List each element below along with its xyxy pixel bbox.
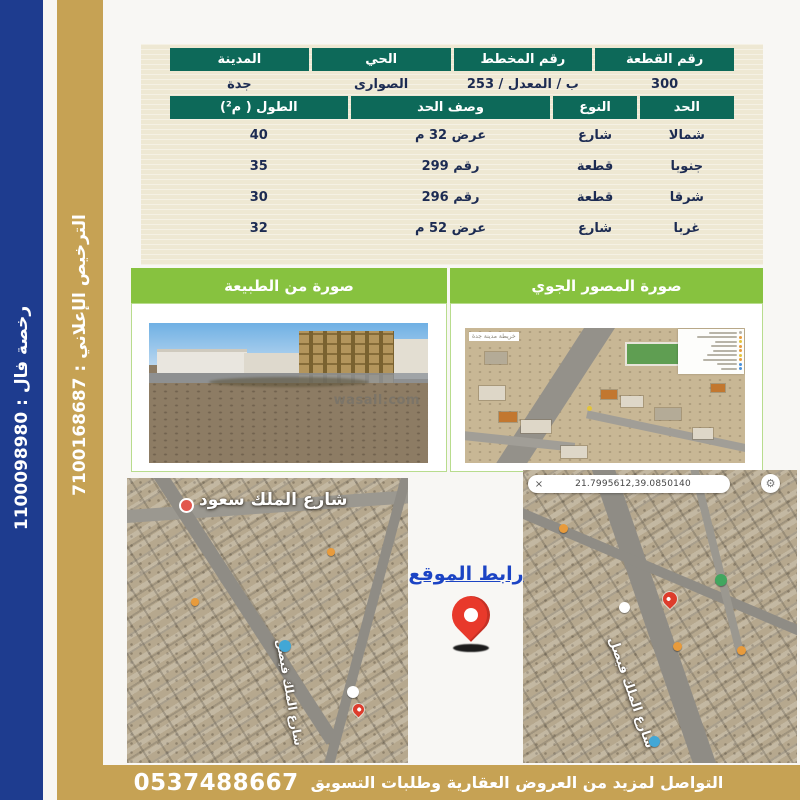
footer-message: التواصل لمزيد من العروض العقارية وطلبات … bbox=[311, 773, 724, 792]
east-length: 30 bbox=[170, 182, 348, 212]
pin-shadow bbox=[453, 644, 489, 652]
north-length: 40 bbox=[170, 120, 348, 150]
plot-marker bbox=[587, 406, 592, 411]
value-city: جدة bbox=[170, 72, 309, 96]
coordinates-pill: × 21.7995612,39.0850140 bbox=[528, 475, 730, 493]
poi-icon bbox=[673, 642, 682, 651]
site-link-label[interactable]: رابط الموقع bbox=[408, 563, 524, 585]
west-desc: عرض 52 م bbox=[351, 213, 551, 243]
building-block bbox=[601, 390, 617, 399]
south-desc: رقم 299 bbox=[351, 151, 551, 181]
road bbox=[319, 478, 408, 763]
aerial-photo-header: صورة المصور الجوي bbox=[450, 268, 763, 303]
ad-license-text: الترخيص الإعلاني : 7100168687 bbox=[70, 214, 90, 496]
value-district: الصوارى bbox=[312, 72, 451, 96]
street-marker-icon bbox=[181, 500, 192, 511]
east-type: قطعة bbox=[553, 182, 636, 212]
west-type: شارع bbox=[553, 213, 636, 243]
real-estate-flyer: رخصة فال : 1100098980 الترخيص الإعلاني :… bbox=[0, 0, 800, 800]
north-desc: عرض 32 م bbox=[351, 120, 551, 150]
south-type: قطعة bbox=[553, 151, 636, 181]
header-type: النوع bbox=[553, 96, 636, 119]
header-plan-number: رقم المخطط bbox=[454, 48, 593, 71]
nature-photo: wasall.com bbox=[149, 323, 428, 463]
header-plot-number: رقم القطعة bbox=[595, 48, 734, 71]
nature-photo-header: صورة من الطبيعة bbox=[131, 268, 447, 303]
location-pin-icon bbox=[351, 702, 367, 718]
fal-license-text: رخصة فال : 1100098980 bbox=[12, 306, 32, 530]
building-block bbox=[621, 396, 643, 407]
site-link-pin-icon[interactable] bbox=[444, 588, 498, 642]
info-table: رقم القطعة رقم المخطط الحي المدينة 300 ب… bbox=[167, 47, 737, 97]
poi-icon bbox=[559, 524, 568, 533]
poi-icon bbox=[347, 686, 359, 698]
table-row: شرقا قطعة رقم 296 30 bbox=[170, 182, 734, 212]
gear-icon[interactable]: ⚙ bbox=[761, 474, 780, 493]
close-icon[interactable]: × bbox=[528, 479, 550, 490]
header-city: المدينة bbox=[170, 48, 309, 71]
map-title-label: خريطة مدينة جدة bbox=[469, 332, 519, 341]
left-map: شارع الملك سعود شارع الملك فيصل bbox=[127, 478, 408, 763]
header-boundary: الحد bbox=[640, 96, 734, 119]
building-block bbox=[521, 420, 551, 433]
building-block bbox=[561, 446, 587, 458]
value-plan-number: ب / المعدل / 253 bbox=[454, 72, 593, 96]
info-table-header-row: رقم القطعة رقم المخطط الحي المدينة bbox=[170, 48, 734, 71]
phone-number: 0537488667 bbox=[134, 770, 299, 796]
road bbox=[689, 470, 745, 658]
poi-icon bbox=[737, 646, 746, 655]
building-block bbox=[479, 386, 505, 400]
location-pin-icon bbox=[660, 589, 680, 609]
building bbox=[157, 349, 247, 373]
east-desc: رقم 296 bbox=[351, 182, 551, 212]
bounds-table: الحد النوع وصف الحد الطول ( م²) شمالا شا… bbox=[167, 95, 737, 244]
table-row: شمالا شارع عرض 32 م 40 bbox=[170, 120, 734, 150]
street-label-king-faisal: شارع الملك فيصل bbox=[605, 635, 657, 750]
header-district: الحي bbox=[312, 48, 451, 71]
right-map: شارع الملك فيصل × 21.7995612,39.0850140 … bbox=[523, 470, 797, 763]
east-side: شرقا bbox=[640, 182, 734, 212]
coordinates-text: 21.7995612,39.0850140 bbox=[550, 479, 730, 489]
legend bbox=[678, 329, 744, 374]
value-plot-number: 300 bbox=[595, 72, 734, 96]
footer-bar: التواصل لمزيد من العروض العقارية وطلبات … bbox=[57, 765, 800, 800]
mosque-poi-icon bbox=[279, 640, 291, 652]
info-table-value-row: 300 ب / المعدل / 253 الصوارى جدة bbox=[170, 72, 734, 96]
poi-icon bbox=[327, 548, 335, 556]
header-boundary-desc: وصف الحد bbox=[351, 96, 551, 119]
table-row: غربا شارع عرض 52 م 32 bbox=[170, 213, 734, 243]
north-type: شارع bbox=[553, 120, 636, 150]
table-row: جنوبا قطعة رقم 299 35 bbox=[170, 151, 734, 181]
bounds-table-header-row: الحد النوع وصف الحد الطول ( م²) bbox=[170, 96, 734, 119]
aerial-photo: خريطة مدينة جدة bbox=[465, 328, 745, 463]
south-side: جنوبا bbox=[640, 151, 734, 181]
road bbox=[585, 470, 716, 763]
south-length: 35 bbox=[170, 151, 348, 181]
park-poi-icon bbox=[715, 574, 727, 586]
header-length: الطول ( م²) bbox=[170, 96, 348, 119]
west-side: غربا bbox=[640, 213, 734, 243]
poi-icon bbox=[619, 602, 630, 613]
street-label-king-saud: شارع الملك سعود bbox=[199, 490, 347, 510]
north-side: شمالا bbox=[640, 120, 734, 150]
west-length: 32 bbox=[170, 213, 348, 243]
building-block bbox=[485, 352, 507, 364]
building-block bbox=[711, 384, 725, 392]
watermark: wasall.com bbox=[334, 393, 420, 408]
building bbox=[244, 353, 304, 373]
building-block bbox=[693, 428, 713, 439]
poi-icon bbox=[649, 736, 660, 747]
poi-icon bbox=[191, 598, 199, 606]
building-block bbox=[655, 408, 681, 420]
scrub bbox=[209, 377, 369, 387]
building-block bbox=[499, 412, 517, 422]
